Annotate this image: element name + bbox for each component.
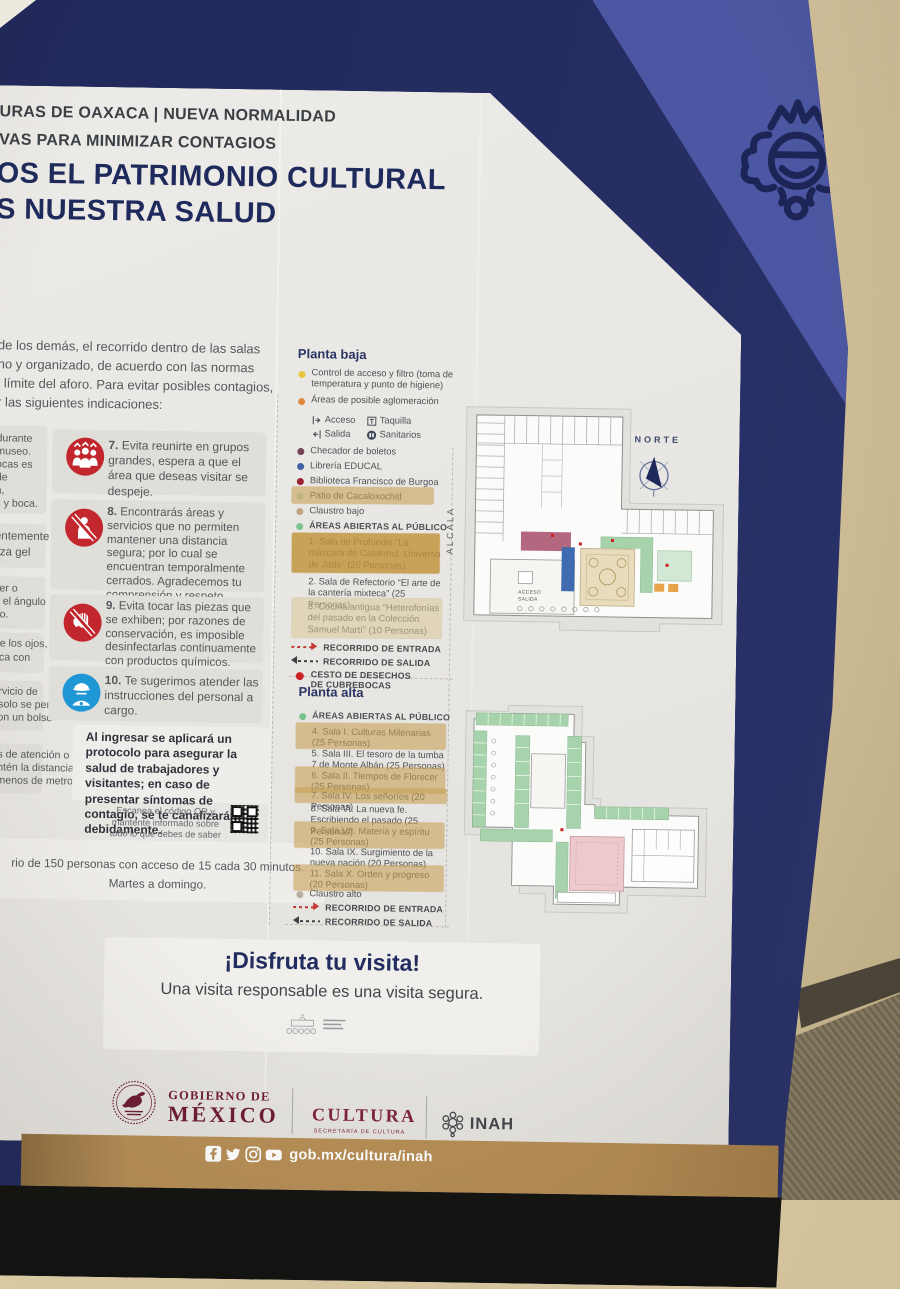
areas-abiertas-dot — [296, 523, 303, 530]
fragment-text: rte los ojos, — [0, 637, 48, 651]
control-dot — [298, 371, 305, 378]
legend-recorrido-salida: RECORRIDO DE SALIDA — [323, 656, 431, 668]
fragment-text: l menos de metro — [0, 774, 73, 788]
planta-alta-title: Planta alta — [298, 684, 363, 700]
twitter-icon — [225, 1146, 241, 1162]
fragment-text: liza gel — [0, 546, 31, 560]
legend-libreria: Librería EDUCAL — [310, 460, 382, 473]
board-bottom-edge — [0, 1183, 785, 1288]
legend-salida: Salida — [325, 428, 351, 440]
fragment-text: museo. — [0, 445, 31, 459]
alcala-street-label: ALCALA — [445, 507, 456, 555]
sign-board: URAS DE OAXACA | NUEVA NORMALIDAD VAS PA… — [0, 0, 862, 1289]
instruction-8-text: 8. Encontrarás áreas y servicios que no … — [106, 505, 261, 604]
planta-alta-floorplan — [459, 701, 714, 927]
biblioteca-dot — [297, 478, 304, 485]
route-in-arrow-icon — [291, 646, 313, 648]
salida-icon — [312, 429, 322, 439]
route-in-arrow-icon — [293, 906, 315, 908]
fragment-text: a el ángulo — [0, 595, 46, 609]
instruction-9-number: 9. — [106, 599, 116, 612]
headline-line1: OS EL PATRIMONIO CULTURAL — [0, 157, 446, 197]
instruction-7-text: 7. Evita reunirte en grupos grandes, esp… — [108, 438, 261, 501]
facebook-icon — [205, 1146, 221, 1162]
intro-line: r las siguientes indicaciones: — [0, 394, 163, 412]
route-out-arrowhead — [291, 656, 297, 664]
tape-overlay — [296, 723, 446, 750]
instruction-10-number: 10. — [105, 673, 122, 687]
alta-recorrido-entrada: RECORRIDO DE ENTRADA — [325, 902, 443, 914]
fragment-text: do. — [0, 608, 9, 621]
cultura-label: CULTURA — [312, 1104, 417, 1127]
fragment-text: durante — [0, 432, 33, 446]
map-salida-label: SALIDA — [518, 596, 538, 602]
fragment-text: ocas es — [0, 458, 33, 472]
instruction-10-text: 10. Te sugerimos atender las instruccion… — [104, 673, 259, 720]
route-in-arrowhead — [311, 642, 317, 650]
tape-overlay — [292, 533, 440, 574]
acceso-icon — [312, 415, 322, 425]
headline-line2: S NUESTRA SALUD — [0, 193, 277, 230]
oaxaca-sun-emblem-icon — [732, 93, 862, 231]
fragment-text: a, — [0, 484, 5, 497]
legend-acceso: Acceso — [325, 414, 356, 426]
legend-recorrido-entrada: RECORRIDO DE ENTRADA — [323, 642, 441, 654]
tape-overlay — [292, 487, 434, 505]
legend-areas-abiertas: ÁREAS ABIERTAS AL PÚBLICO — [309, 520, 447, 532]
cesto-dot — [296, 672, 304, 680]
fragment-text: con un bolso — [0, 711, 52, 725]
planta-baja-floorplan — [459, 401, 729, 637]
cropped-card-2 — [0, 522, 46, 568]
libreria-dot — [297, 463, 304, 470]
sanitarios-icon — [367, 430, 377, 440]
legend-checador: Checador de boletos — [310, 445, 396, 458]
fragment-text: oca con — [0, 651, 30, 665]
checador-dot — [297, 448, 304, 455]
route-out-arrow-icon — [300, 920, 320, 922]
qr-code — [230, 805, 258, 833]
no-person-icon — [64, 507, 105, 548]
people-group-icon — [65, 436, 106, 477]
aglomeracion-dot — [298, 398, 305, 405]
inah-logo-icon — [440, 1110, 466, 1138]
legend-sanitarios: Sanitarios — [380, 429, 422, 441]
map-acceso-label: ACCESO — [518, 589, 541, 595]
instruction-9-text: 9. Evita tocar las piezas que se exhiben… — [105, 599, 260, 670]
route-in-arrowhead — [313, 902, 319, 910]
instruction-8-number: 8. — [107, 505, 117, 518]
photo-of-museum-sign: { "board": { "header": { "kicker1": "URA… — [0, 0, 900, 1200]
legend-control: Control de acceso y filtro (toma de temp… — [311, 367, 463, 392]
tape-overlay — [294, 822, 444, 849]
fragment-text: entemente — [0, 530, 49, 544]
claustro-bajo-dot — [296, 508, 303, 515]
taquilla-icon — [367, 416, 377, 426]
claustro-alto-dot — [296, 891, 303, 898]
instagram-icon — [245, 1146, 261, 1162]
tape-overlay — [292, 598, 442, 639]
mexico-eagle-seal — [110, 1078, 159, 1127]
instruction-7-number: 7. — [108, 438, 118, 452]
youtube-icon — [265, 1147, 282, 1163]
planta-baja-title: Planta baja — [298, 346, 367, 362]
inah-label: INAH — [470, 1115, 515, 1135]
legend-aglomeracion: Áreas de posible aglomeración — [311, 394, 463, 408]
route-out-arrowhead — [293, 916, 299, 924]
fragment-text: as de atención o — [0, 748, 69, 762]
mexico-label: MÉXICO — [168, 1101, 279, 1129]
alta-areas-dot — [299, 713, 306, 720]
fragment-text: z y boca. — [0, 497, 38, 511]
tape-overlay — [295, 788, 447, 804]
staff-person-icon — [61, 672, 102, 713]
alta-recorrido-salida: RECORRIDO DE SALIDA — [325, 916, 433, 928]
route-out-arrow-icon — [298, 660, 318, 662]
fragment-text: ser o — [0, 582, 18, 596]
alta-claustro: Claustro alto — [309, 888, 361, 900]
legend-taquilla: Taquilla — [380, 415, 412, 427]
fragment-text: de — [0, 471, 8, 484]
footer-url: gob.mx/cultura/inah — [289, 1147, 433, 1165]
legend-claustro-bajo: Claustro bajo — [309, 505, 364, 517]
no-touch-hand-icon — [62, 602, 103, 643]
museo-logo — [277, 1010, 367, 1041]
fragment-text: ervicio de — [0, 685, 38, 699]
